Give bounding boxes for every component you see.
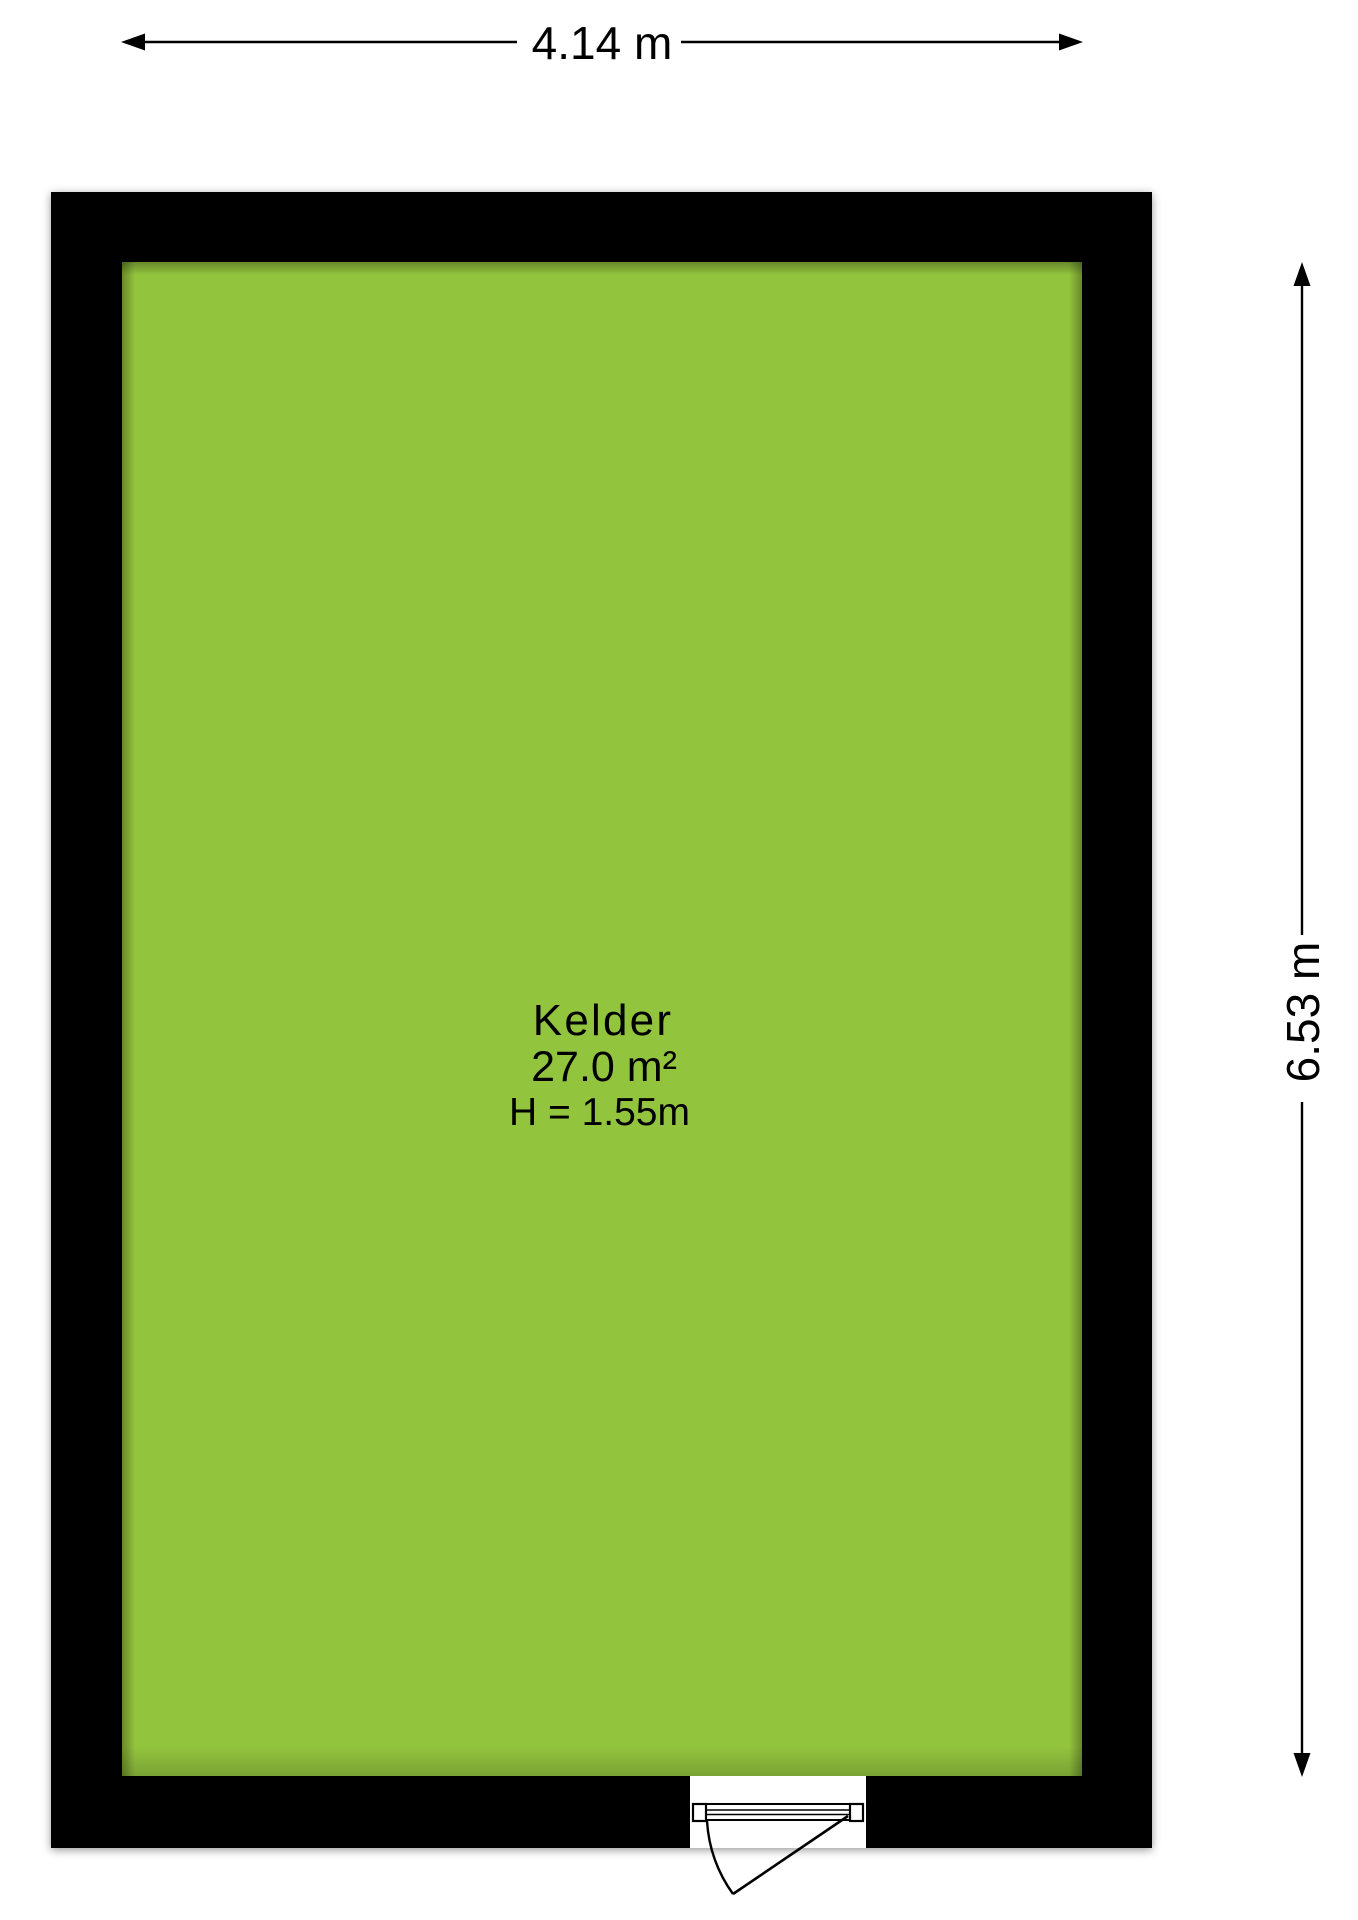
- svg-text:6.53 m: 6.53 m: [1277, 942, 1329, 1083]
- svg-text:Kelder: Kelder: [533, 996, 673, 1045]
- svg-text:27.0 m²: 27.0 m²: [531, 1043, 677, 1091]
- svg-text:4.14 m: 4.14 m: [532, 17, 673, 69]
- svg-text:H = 1.55m: H = 1.55m: [509, 1091, 690, 1134]
